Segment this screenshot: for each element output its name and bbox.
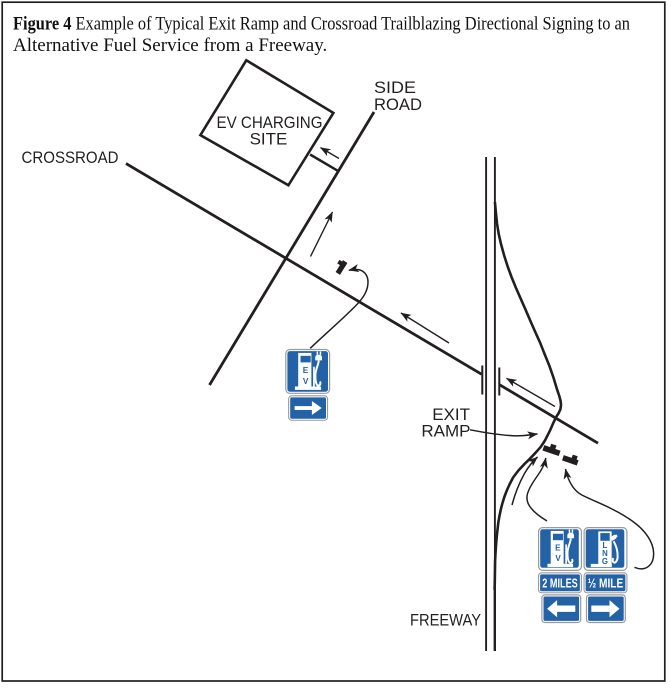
svg-text:CROSSROAD: CROSSROAD [22, 148, 119, 167]
svg-text:½ MILE: ½ MILE [588, 576, 624, 591]
svg-text:FREEWAY: FREEWAY [410, 611, 481, 630]
svg-text:Figure 4 Example of Typical Ex: Figure 4 Example of Typical Exit Ramp an… [13, 13, 630, 34]
svg-text:2 MILES: 2 MILES [542, 576, 578, 591]
svg-text:Alternative Fuel Service from: Alternative Fuel Service from a Freeway. [13, 35, 327, 56]
svg-text:SITE: SITE [250, 130, 288, 149]
svg-text:RAMP: RAMP [421, 422, 470, 441]
svg-text:ROAD: ROAD [374, 95, 422, 114]
